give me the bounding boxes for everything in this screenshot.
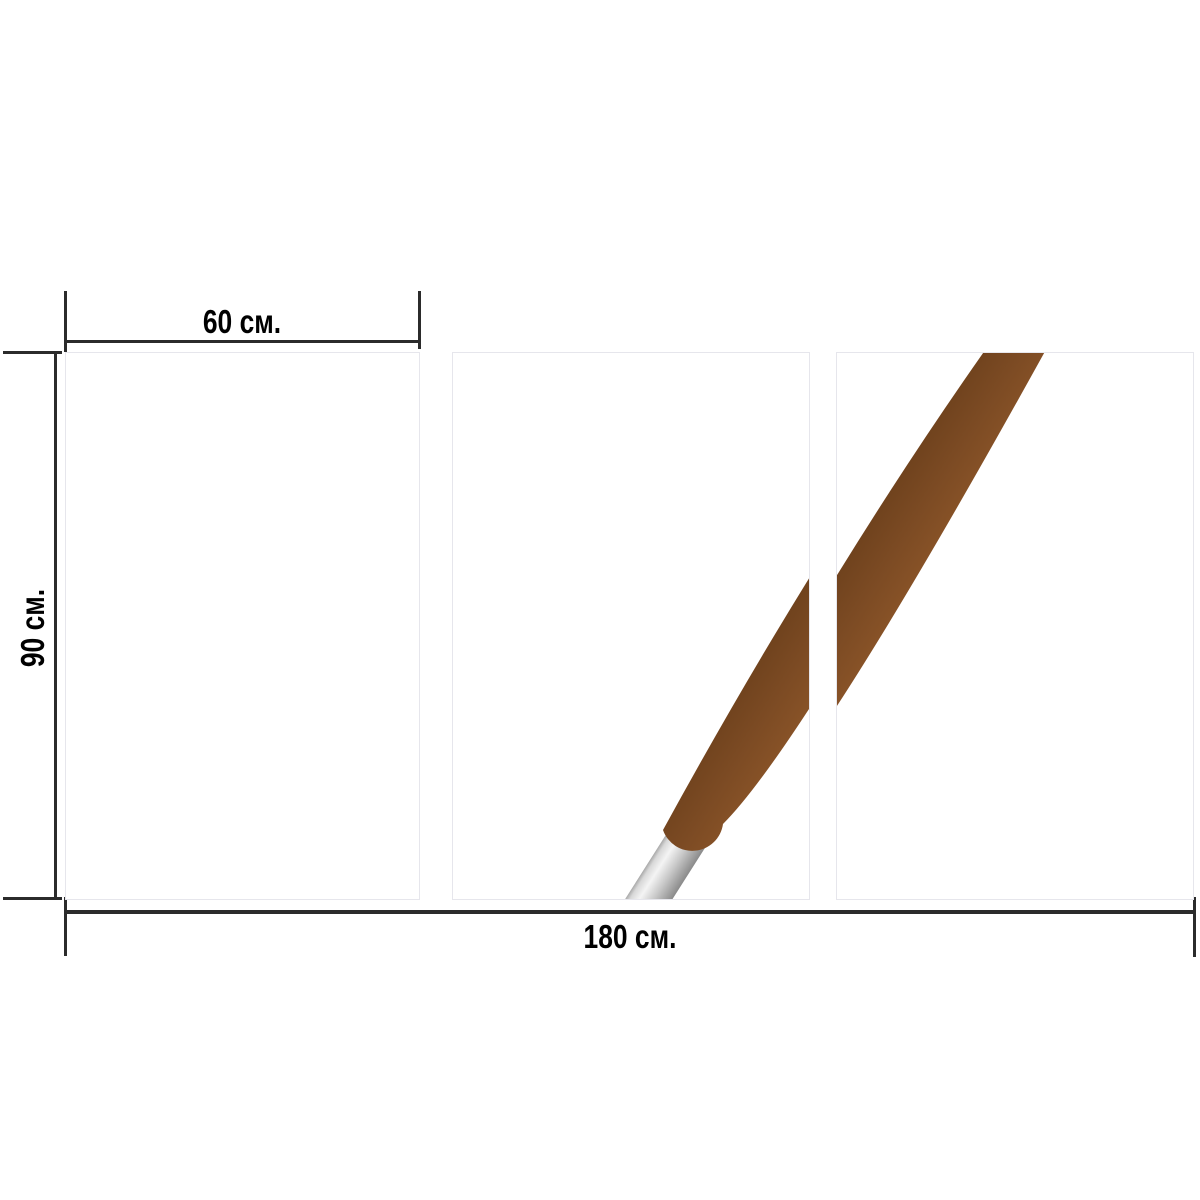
dimension-tick	[64, 897, 67, 956]
triptych-panel-right	[836, 352, 1194, 900]
artwork-slice	[452, 352, 810, 900]
panel-height-dimension-line	[54, 352, 57, 899]
artwork-slice	[65, 352, 420, 900]
brush-handle	[663, 352, 810, 851]
artwork-slice	[836, 352, 1194, 900]
dimension-tick	[418, 291, 421, 349]
dimension-tick	[3, 351, 62, 354]
total-width-label: 180 см.	[584, 918, 677, 956]
triptych-panel-center	[452, 352, 810, 900]
triptych-size-diagram: 60 см. 90 см. 180 см.	[0, 0, 1200, 1200]
triptych-panel-left	[65, 352, 420, 900]
dimension-tick	[3, 897, 62, 900]
dimension-tick	[64, 291, 67, 352]
panel-width-label: 60 см.	[203, 303, 281, 341]
panel-height-label: 90 см.	[14, 589, 52, 667]
total-width-dimension-line	[65, 910, 1195, 914]
dimension-tick	[1193, 897, 1196, 957]
brush-handle	[836, 352, 1048, 851]
